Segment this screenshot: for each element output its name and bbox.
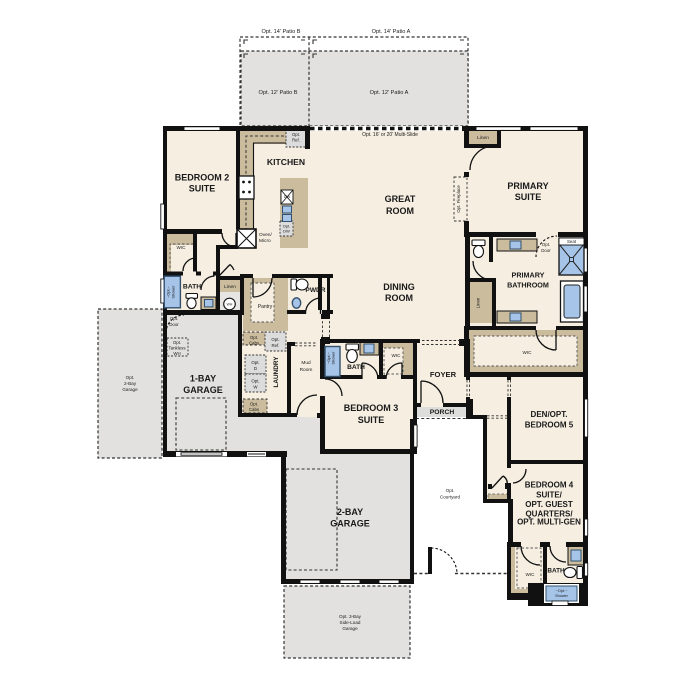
svg-text:Opt.: Opt.: [251, 360, 259, 365]
svg-text:BATH: BATH: [183, 284, 201, 291]
svg-text:PORCH: PORCH: [430, 409, 455, 416]
svg-text:Opt. Fireplace: Opt. Fireplace: [456, 185, 461, 213]
svg-text:OPT. GUEST: OPT. GUEST: [525, 500, 573, 509]
svg-text:SUITE: SUITE: [358, 415, 385, 425]
svg-text:Garage: Garage: [342, 626, 358, 631]
svg-text:~Opt.~: ~Opt.~: [327, 351, 331, 363]
svg-text:Opt.: Opt.: [271, 337, 279, 342]
svg-text:Opt.: Opt.: [446, 488, 455, 493]
svg-text:2-Bay: 2-Bay: [124, 381, 137, 386]
svg-text:Cabs: Cabs: [249, 341, 260, 346]
svg-text:Opt.: Opt.: [173, 340, 181, 345]
svg-text:ROOM: ROOM: [385, 293, 413, 303]
svg-text:Ref.: Ref.: [292, 138, 300, 143]
svg-text:WH: WH: [227, 303, 233, 307]
svg-text:DW: DW: [284, 194, 291, 199]
svg-text:Opt. 12' Patio A: Opt. 12' Patio A: [370, 90, 409, 96]
svg-text:Tankless: Tankless: [168, 346, 186, 351]
svg-text:GREAT: GREAT: [385, 194, 416, 204]
svg-text:Shower: Shower: [555, 594, 569, 598]
svg-text:BATH: BATH: [347, 364, 365, 371]
svg-text:SUITE: SUITE: [515, 192, 542, 202]
svg-text:BATHROOM: BATHROOM: [507, 281, 549, 290]
svg-text:Opt.: Opt.: [250, 335, 258, 340]
svg-text:FOYER: FOYER: [430, 370, 457, 379]
svg-text:1-BAY: 1-BAY: [190, 374, 216, 384]
svg-text:Shower: Shower: [332, 351, 336, 365]
svg-text:SUITE: SUITE: [189, 184, 216, 194]
svg-text:Shower: Shower: [172, 285, 176, 299]
svg-text:ROOM: ROOM: [386, 206, 414, 216]
svg-text:LAUNDRY: LAUNDRY: [273, 356, 280, 388]
svg-text:Opt. 12' Patio B: Opt. 12' Patio B: [258, 90, 297, 96]
svg-text:Ref.: Ref.: [271, 343, 279, 348]
svg-text:WIC: WIC: [177, 245, 187, 250]
svg-text:Seat: Seat: [567, 239, 577, 244]
svg-text:WIC: WIC: [526, 572, 536, 577]
svg-text:Micro: Micro: [259, 238, 271, 244]
svg-text:Door: Door: [169, 322, 179, 327]
svg-text:Opt.: Opt.: [250, 402, 258, 407]
svg-text:GARAGE: GARAGE: [330, 519, 370, 529]
svg-text:Opt. 3-Bay: Opt. 3-Bay: [339, 614, 362, 619]
svg-text:SUITE/: SUITE/: [536, 491, 563, 500]
svg-text:KITCHEN: KITCHEN: [267, 157, 305, 167]
svg-text:Opt.: Opt.: [292, 132, 300, 137]
svg-text:WIC: WIC: [523, 350, 533, 355]
svg-text:BEDROOM 5: BEDROOM 5: [525, 421, 574, 430]
svg-text:Linen: Linen: [476, 297, 481, 308]
svg-text:BEDROOM 4: BEDROOM 4: [525, 481, 574, 490]
svg-text:Opt.: Opt.: [126, 375, 135, 380]
svg-text:Door: Door: [541, 248, 551, 253]
svg-text:Linen: Linen: [224, 284, 236, 290]
svg-text:Courtyard: Courtyard: [440, 495, 461, 500]
svg-text:~Opt.~: ~Opt.~: [167, 285, 171, 297]
svg-text:BEDROOM 3: BEDROOM 3: [344, 403, 399, 413]
svg-text:PRIMARY: PRIMARY: [507, 181, 548, 191]
svg-text:Pantry: Pantry: [258, 304, 273, 310]
svg-text:Oven/: Oven/: [259, 232, 272, 238]
svg-text:Garage: Garage: [122, 387, 138, 392]
svg-text:GARAGE: GARAGE: [183, 385, 223, 395]
svg-text:WIC: WIC: [392, 353, 402, 358]
svg-text:DEN/OPT.: DEN/OPT.: [531, 410, 568, 419]
svg-text:BEDROOM 2: BEDROOM 2: [175, 173, 230, 183]
svg-text:Opt. 16' or 20' Multi-Slide: Opt. 16' or 20' Multi-Slide: [362, 132, 418, 138]
svg-text:PRIMARY: PRIMARY: [512, 271, 545, 280]
svg-text:BATH: BATH: [547, 568, 565, 575]
svg-text:2-BAY: 2-BAY: [337, 507, 363, 517]
svg-text:Side-Load: Side-Load: [340, 620, 361, 625]
svg-text:Cabs: Cabs: [249, 407, 260, 412]
svg-text:Mud: Mud: [301, 360, 311, 366]
svg-text:DINING: DINING: [383, 282, 415, 292]
svg-text:Opt.: Opt.: [542, 242, 550, 247]
svg-text:PWDR: PWDR: [305, 287, 325, 294]
svg-text:Opt.: Opt.: [170, 316, 178, 321]
svg-text:Opt.: Opt.: [251, 379, 259, 384]
svg-text:WH: WH: [173, 351, 180, 356]
svg-text:~Opt.~: ~Opt.~: [556, 589, 568, 593]
svg-text:Room: Room: [300, 367, 313, 373]
svg-text:Opt. 14' Patio A: Opt. 14' Patio A: [372, 29, 411, 35]
svg-text:OPT. MULTI-GEN: OPT. MULTI-GEN: [517, 518, 581, 527]
svg-text:Opt. 14' Patio B: Opt. 14' Patio B: [261, 29, 300, 35]
svg-text:D: D: [254, 366, 257, 371]
svg-text:DW: DW: [283, 229, 290, 234]
svg-text:Linen: Linen: [477, 135, 489, 141]
